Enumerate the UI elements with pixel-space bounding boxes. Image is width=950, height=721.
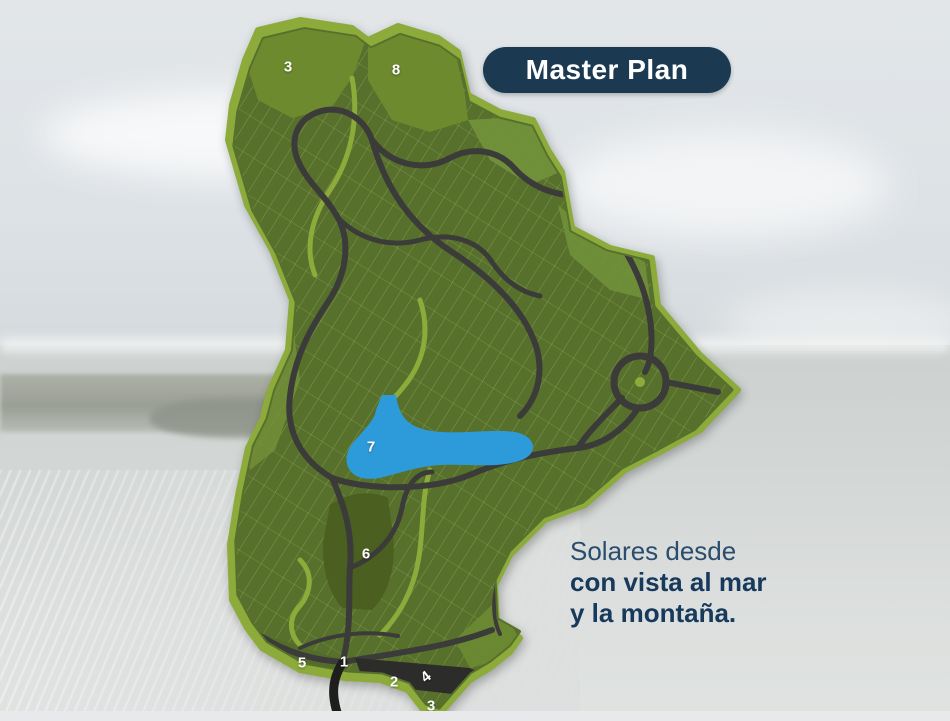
bottom-photo-strip xyxy=(0,711,950,721)
zone-label-8: 8 xyxy=(392,62,400,79)
roundabout-center xyxy=(635,377,645,387)
master-plan-badge: Master Plan xyxy=(483,47,731,93)
zone-label-5: 5 xyxy=(298,655,306,672)
zone-6-park xyxy=(323,493,394,610)
tagline-line3: y la montaña. xyxy=(570,598,767,629)
zone-label-6: 6 xyxy=(362,546,370,563)
zone-label-1: 1 xyxy=(340,654,348,671)
master-plan-map xyxy=(0,0,950,721)
block-lines xyxy=(0,0,950,721)
zone-label-7: 7 xyxy=(367,439,375,456)
tagline-line2: con vista al mar xyxy=(570,567,767,598)
tagline: Solares desde con vista al mar y la mont… xyxy=(570,536,767,629)
master-plan-flyer: 3 8 7 6 5 1 2 4 3 Master Plan Solares de… xyxy=(0,0,950,721)
tagline-line1: Solares desde xyxy=(570,536,767,567)
master-plan-badge-label: Master Plan xyxy=(526,54,689,86)
zone-label-2: 2 xyxy=(390,674,398,691)
zone-label-3-top: 3 xyxy=(284,59,292,76)
